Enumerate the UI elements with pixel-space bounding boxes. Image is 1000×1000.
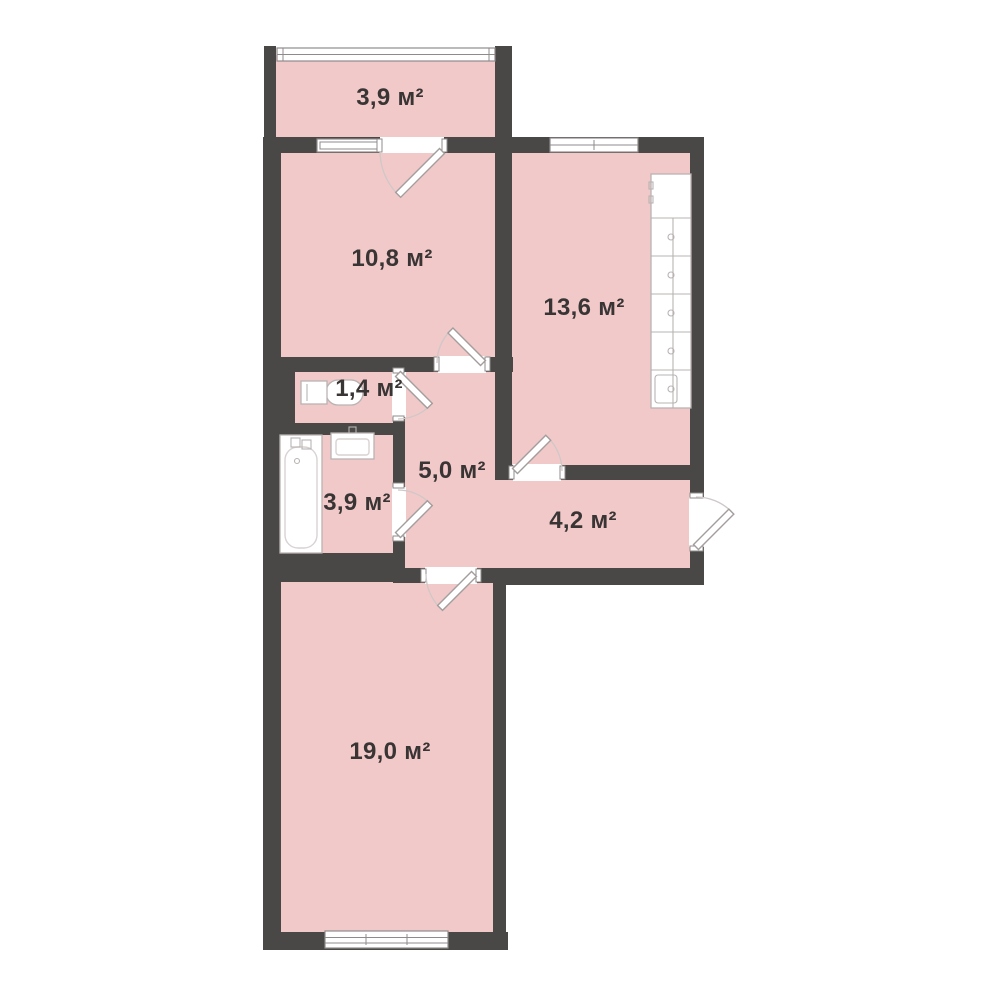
window-kitchen	[550, 138, 638, 152]
label-living-room: 19,0 м²	[349, 738, 430, 766]
wall-segment	[263, 553, 405, 582]
kitchen-units	[649, 174, 691, 408]
floor-plan-canvas	[0, 0, 1000, 1000]
window-living-room	[325, 931, 448, 948]
wall-segment	[263, 137, 281, 950]
window-room-10-8	[317, 139, 380, 152]
label-hallway: 5,0 м²	[418, 457, 486, 485]
label-kitchen: 13,6 м²	[543, 294, 624, 322]
label-wc: 1,4 м²	[335, 375, 403, 403]
label-room-10-8: 10,8 м²	[351, 245, 432, 273]
floor-plan: 3,9 м² 10,8 м² 13,6 м² 1,4 м² 5,0 м² 3,9…	[0, 0, 1000, 1000]
wall-segment	[264, 46, 276, 142]
label-entry-hall: 4,2 м²	[549, 507, 617, 535]
balcony-glazing	[277, 48, 495, 61]
bathtub	[280, 435, 322, 553]
label-bathroom: 3,9 м²	[323, 489, 391, 517]
entrance-door	[689, 493, 734, 551]
label-balcony: 3,9 м²	[356, 84, 424, 112]
wall-segment	[493, 568, 704, 585]
wall-segment	[493, 568, 506, 950]
wall-segment	[495, 46, 512, 480]
